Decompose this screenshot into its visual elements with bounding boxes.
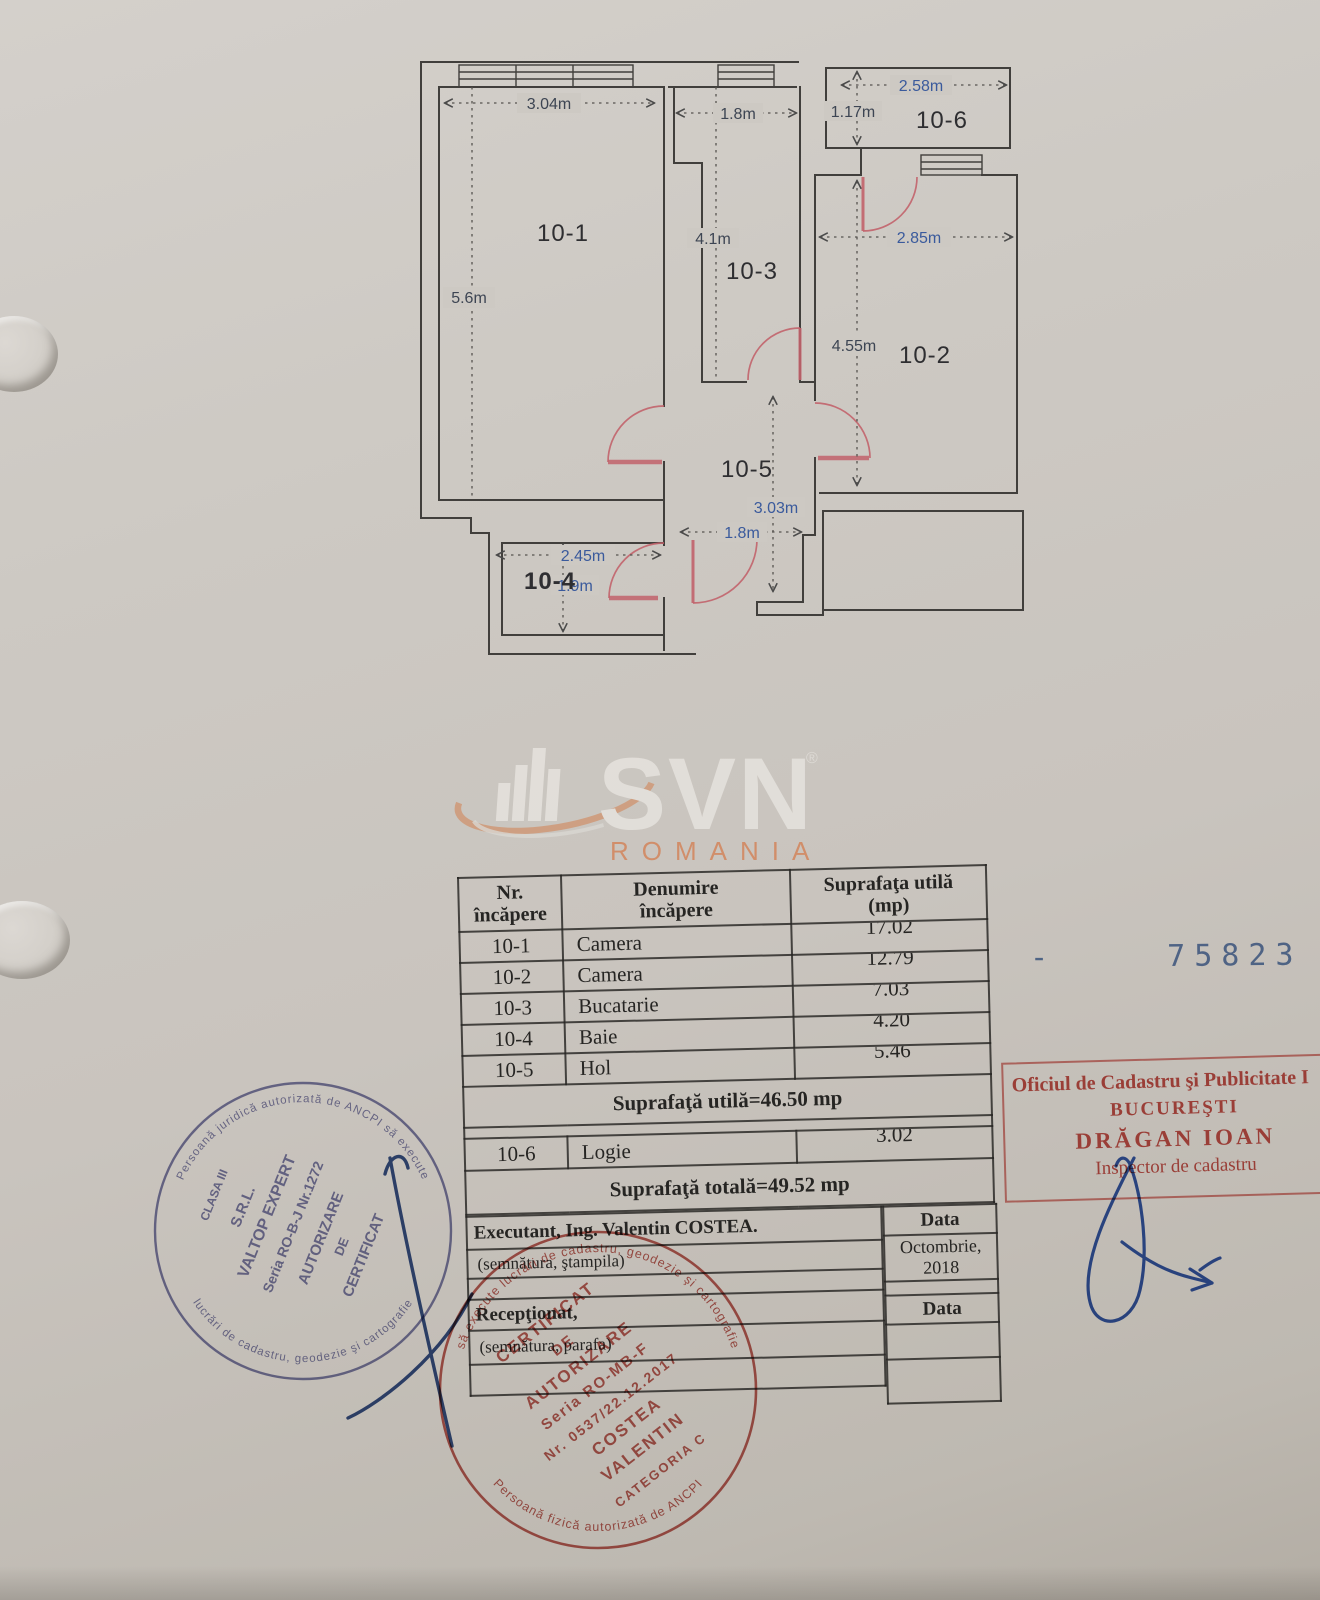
- dim-10-5-width: 1.8m: [724, 525, 760, 542]
- cell-nr: 10-4: [462, 1022, 566, 1056]
- cell-nr: 10-3: [461, 991, 565, 1025]
- svg-text:Persoană fizică autorizată de: Persoană fizică autorizată de ANCPI: [491, 1476, 706, 1534]
- signature-executant: [330, 1128, 500, 1468]
- room-label-10-6: 10-6: [916, 107, 968, 134]
- cell-nr: 10-1: [459, 929, 563, 963]
- dim-10-1-height: 5.6m: [451, 290, 487, 307]
- svn-romania-logo: SVN ® ROMANIA: [450, 733, 870, 868]
- empty-cell: [887, 1357, 1001, 1404]
- signature-inspector: [1052, 1142, 1282, 1357]
- dim-10-3-width: 1.8m: [720, 106, 756, 123]
- registered-mark: ®: [806, 750, 818, 767]
- room-label-10-5: 10-5: [721, 456, 773, 483]
- cell-nr: 10-5: [462, 1053, 566, 1087]
- header-suprafata: Suprafaţa utilă(mp): [790, 865, 987, 924]
- cell-suprafata: 3.02: [796, 1126, 993, 1163]
- room-label-10-4: 10-4: [524, 568, 576, 595]
- dim-10-2-height: 4.55m: [832, 338, 876, 355]
- registration-number: - 75823 201: [1030, 936, 1320, 976]
- header-nr: Nr.încăpere: [458, 875, 562, 932]
- cell-nr: 10-2: [460, 960, 564, 994]
- stamp-ring-text-bottom: Persoană fizică autorizată de ANCPI: [491, 1476, 706, 1534]
- hole-punch-top: [0, 316, 58, 392]
- stamp-line-srl: S.R.L.: [227, 1184, 259, 1230]
- dim-10-3-height: 4.1m: [695, 231, 731, 248]
- cell-suprafata: 5.46: [794, 1043, 991, 1079]
- svn-buildings-icon: [496, 748, 562, 821]
- area-table: Nr.încăpere Denumireîncăpere Suprafaţa u…: [457, 864, 995, 1216]
- data-value: Octombrie, 2018: [884, 1233, 998, 1282]
- dim-10-2-width: 2.85m: [897, 230, 941, 247]
- header-denumire: Denumireîncăpere: [561, 870, 791, 930]
- dim-10-1-width: 3.04m: [527, 96, 571, 113]
- data-label: Data: [883, 1204, 997, 1236]
- empty-cell: [886, 1322, 1000, 1360]
- room-labels: 10-1 10-2 10-3 10-4 10-5 10-6: [524, 107, 968, 595]
- floor-plan-drawing: 3.04m 5.6m 1.8m 4.1m 2.58m 1.17m 2.85m 4…: [405, 45, 1025, 660]
- cell-suprafata: 12.79: [792, 950, 989, 986]
- dim-10-6-width: 2.58m: [899, 78, 943, 95]
- stamp-line-de: DE: [548, 1331, 578, 1360]
- dim-10-5-height: 3.03m: [754, 500, 798, 517]
- cell-suprafata: 7.03: [793, 981, 990, 1017]
- data-label-2: Data: [885, 1293, 999, 1325]
- cell-suprafata: 17.02: [791, 919, 988, 955]
- signature-right-table: Data Octombrie, 2018 Data: [882, 1203, 1002, 1405]
- svn-logo-text: SVN: [598, 737, 814, 851]
- room-label-10-1: 10-1: [537, 220, 589, 247]
- dimension-labels: 3.04m 5.6m 1.8m 4.1m 2.58m 1.17m 2.85m 4…: [443, 75, 952, 595]
- room-label-10-3: 10-3: [726, 258, 778, 285]
- stamp-line-clasa: CLASA III: [197, 1167, 230, 1223]
- scanned-cadastral-document: 3.04m 5.6m 1.8m 4.1m 2.58m 1.17m 2.85m 4…: [0, 0, 1320, 1600]
- room-label-10-2: 10-2: [899, 342, 951, 369]
- cell-suprafata: 4.20: [794, 1012, 991, 1048]
- romania-logo-text: ROMANIA: [610, 836, 822, 866]
- dim-10-4-width: 2.45m: [561, 548, 605, 565]
- dim-10-6-height: 1.17m: [831, 104, 875, 121]
- hole-punch-bottom: [0, 901, 70, 979]
